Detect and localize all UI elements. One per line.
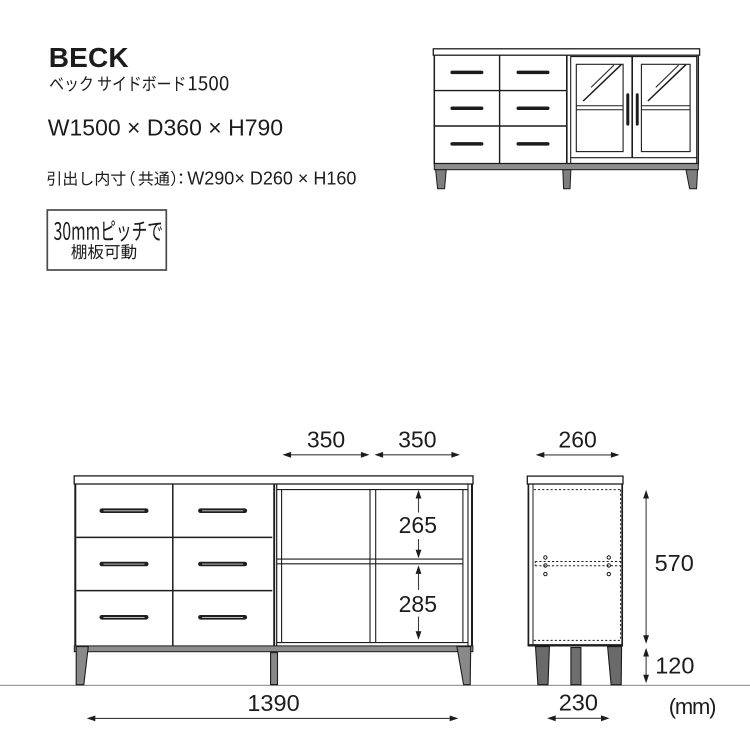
svg-text:W1500 × D360 × H790: W1500 × D360 × H790 — [48, 115, 283, 141]
svg-text:W290× D260 × H160: W290× D260 × H160 — [187, 169, 356, 189]
svg-text:120: 120 — [655, 652, 694, 678]
svg-text:570: 570 — [655, 550, 694, 576]
svg-text:(mm): (mm) — [669, 694, 716, 719]
svg-text:265: 265 — [399, 512, 437, 538]
svg-text:230: 230 — [559, 689, 598, 715]
svg-text:285: 285 — [399, 591, 437, 617]
svg-text:1390: 1390 — [247, 690, 299, 716]
svg-text:BECK: BECK — [49, 42, 129, 73]
svg-text:260: 260 — [558, 426, 596, 452]
svg-text:350: 350 — [398, 426, 436, 452]
svg-text:350: 350 — [307, 426, 345, 452]
